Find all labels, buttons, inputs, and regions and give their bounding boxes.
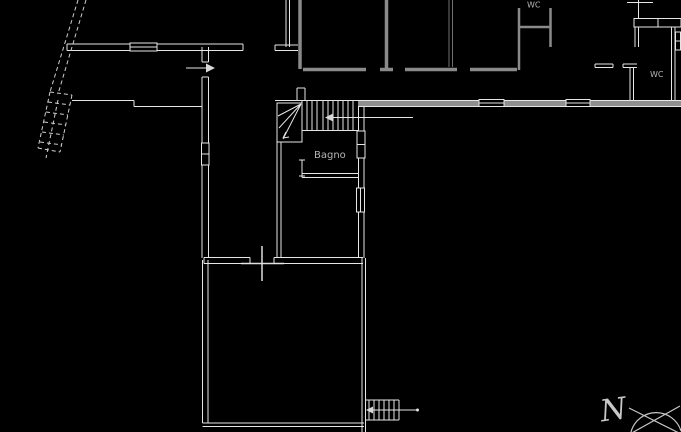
upper-wing-south-wall (275, 100, 681, 107)
entry-arrow-right-icon (206, 64, 215, 73)
floor-plan-canvas: WC WC (0, 0, 681, 432)
top-right-corner-walls: WC (627, 0, 681, 100)
floor-plan-drawing: WC WC (0, 0, 681, 432)
lower-room-walls (203, 258, 366, 432)
right-partitions (595, 64, 637, 100)
exterior-dashed-stair (38, 0, 86, 158)
main-staircase (277, 101, 413, 142)
north-letter: N (597, 391, 631, 430)
bagno-label: Bagno (314, 150, 346, 161)
stair-direction-arrow-left-icon (325, 114, 333, 122)
north-indicator: N (597, 391, 681, 432)
upper-rooms-partitions (286, 0, 517, 100)
exterior-mini-stair (365, 400, 419, 420)
wc-right-label: WC (650, 70, 664, 79)
wc-top-label: WC (527, 1, 541, 10)
wc-top-room: WC (519, 1, 551, 71)
north-compass-icon (629, 406, 681, 432)
corridor-west-wall (186, 47, 215, 258)
top-left-wing-walls (67, 43, 298, 107)
arrow-endpoint-dot (416, 409, 419, 412)
